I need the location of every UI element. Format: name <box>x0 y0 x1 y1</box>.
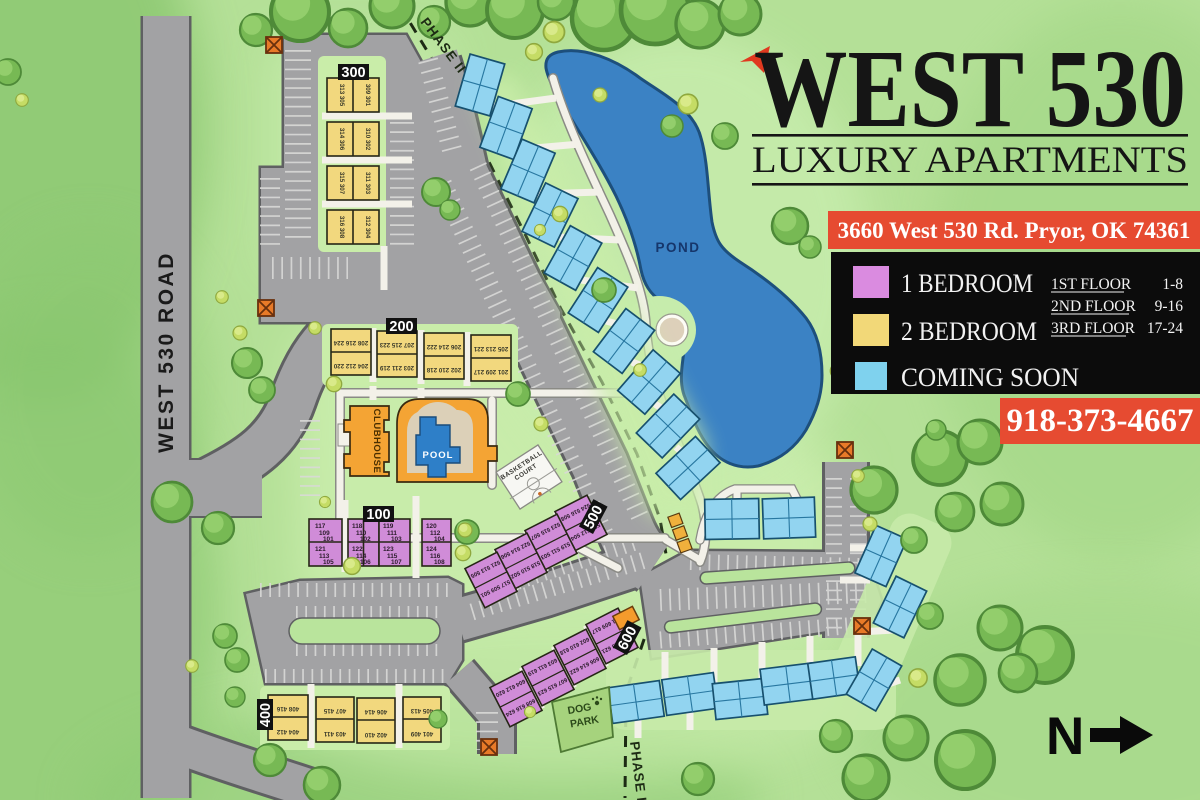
svg-text:1-8: 1-8 <box>1162 276 1183 293</box>
svg-text:404 412: 404 412 <box>276 728 299 735</box>
svg-text:CLUBHOUSE: CLUBHOUSE <box>371 409 382 474</box>
svg-text:17-24: 17-24 <box>1147 320 1183 337</box>
svg-text:108: 108 <box>434 559 445 566</box>
svg-text:POOL: POOL <box>423 450 454 461</box>
svg-text:315 307: 315 307 <box>338 172 345 195</box>
svg-text:106: 106 <box>360 559 371 566</box>
svg-text:313 305: 313 305 <box>338 84 345 107</box>
svg-text:206 214 222: 206 214 222 <box>426 343 461 350</box>
svg-text:122: 122 <box>352 546 363 553</box>
svg-text:COMING SOON: COMING SOON <box>901 363 1079 392</box>
svg-text:103: 103 <box>391 536 402 543</box>
svg-text:WEST 530: WEST 530 <box>754 28 1186 151</box>
svg-text:400: 400 <box>258 703 274 727</box>
svg-text:312 304: 312 304 <box>364 216 371 239</box>
svg-text:N: N <box>1046 707 1084 766</box>
svg-text:2ND FLOOR: 2ND FLOOR <box>1051 298 1136 315</box>
svg-text:208 216 224: 208 216 224 <box>333 339 368 346</box>
svg-text:200: 200 <box>389 319 413 335</box>
svg-text:104: 104 <box>434 536 445 543</box>
svg-text:100: 100 <box>366 507 390 523</box>
svg-text:1ST FLOOR: 1ST FLOOR <box>1051 276 1132 293</box>
svg-text:105: 105 <box>323 559 334 566</box>
svg-text:407 415: 407 415 <box>323 707 346 714</box>
svg-text:205 213 221: 205 213 221 <box>473 345 508 352</box>
svg-text:119: 119 <box>383 523 394 530</box>
svg-text:403 411: 403 411 <box>323 730 346 737</box>
svg-text:2 BEDROOM: 2 BEDROOM <box>901 317 1037 346</box>
svg-text:123: 123 <box>383 546 394 553</box>
svg-text:314 306: 314 306 <box>338 128 345 151</box>
svg-text:310 302: 310 302 <box>364 128 371 151</box>
svg-text:120: 120 <box>426 523 437 530</box>
svg-text:311 303: 311 303 <box>364 172 371 195</box>
svg-text:204 212 220: 204 212 220 <box>333 362 368 369</box>
svg-text:408 416: 408 416 <box>276 705 299 712</box>
svg-text:124: 124 <box>426 546 437 553</box>
svg-text:309 301: 309 301 <box>364 84 371 107</box>
svg-text:202 210 218: 202 210 218 <box>426 366 461 373</box>
svg-text:102: 102 <box>360 536 371 543</box>
svg-text:405 413: 405 413 <box>410 707 433 714</box>
svg-text:LUXURY APARTMENTS: LUXURY APARTMENTS <box>752 140 1188 181</box>
svg-text:3660 West 530 Rd. Pryor, OK 74: 3660 West 530 Rd. Pryor, OK 74361 <box>838 218 1191 243</box>
svg-text:POND: POND <box>655 240 700 255</box>
svg-text:401 409: 401 409 <box>410 730 433 737</box>
svg-text:918-373-4667: 918-373-4667 <box>1007 403 1194 439</box>
svg-text:300: 300 <box>341 65 365 81</box>
svg-text:201 209 217: 201 209 217 <box>473 368 508 375</box>
svg-text:402 410: 402 410 <box>364 731 387 738</box>
svg-text:121: 121 <box>315 546 326 553</box>
svg-text:207 215 223: 207 215 223 <box>379 341 414 348</box>
svg-text:1 BEDROOM: 1 BEDROOM <box>901 269 1033 298</box>
svg-text:117: 117 <box>315 523 326 530</box>
svg-text:101: 101 <box>323 536 334 543</box>
svg-text:406 414: 406 414 <box>364 708 387 715</box>
svg-text:203 211 219: 203 211 219 <box>379 364 414 371</box>
svg-text:118: 118 <box>352 523 363 530</box>
svg-text:3RD FLOOR: 3RD FLOOR <box>1051 320 1136 337</box>
svg-text:107: 107 <box>391 559 402 566</box>
svg-text:WEST 530 ROAD: WEST 530 ROAD <box>155 251 178 453</box>
svg-text:316 308: 316 308 <box>338 216 345 239</box>
svg-text:9-16: 9-16 <box>1155 298 1184 315</box>
